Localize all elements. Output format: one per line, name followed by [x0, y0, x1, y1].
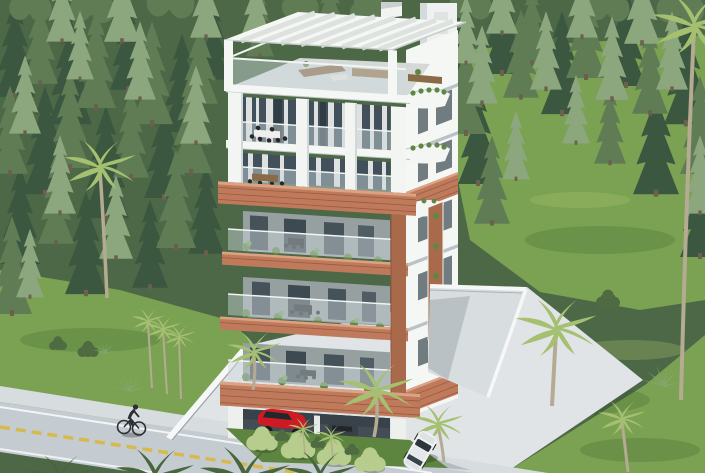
column	[228, 92, 243, 183]
brick-corner-column	[391, 214, 406, 393]
window	[418, 105, 428, 135]
column-shade	[241, 93, 243, 183]
window	[418, 215, 428, 243]
rider-head	[133, 404, 138, 409]
column-shade	[307, 99, 309, 187]
window	[418, 271, 428, 301]
column-shade	[355, 103, 357, 190]
column	[391, 106, 406, 193]
rendering-canvas	[0, 0, 705, 473]
architectural-rendering	[0, 0, 705, 473]
terrace-plant	[415, 69, 421, 75]
window	[418, 337, 428, 367]
